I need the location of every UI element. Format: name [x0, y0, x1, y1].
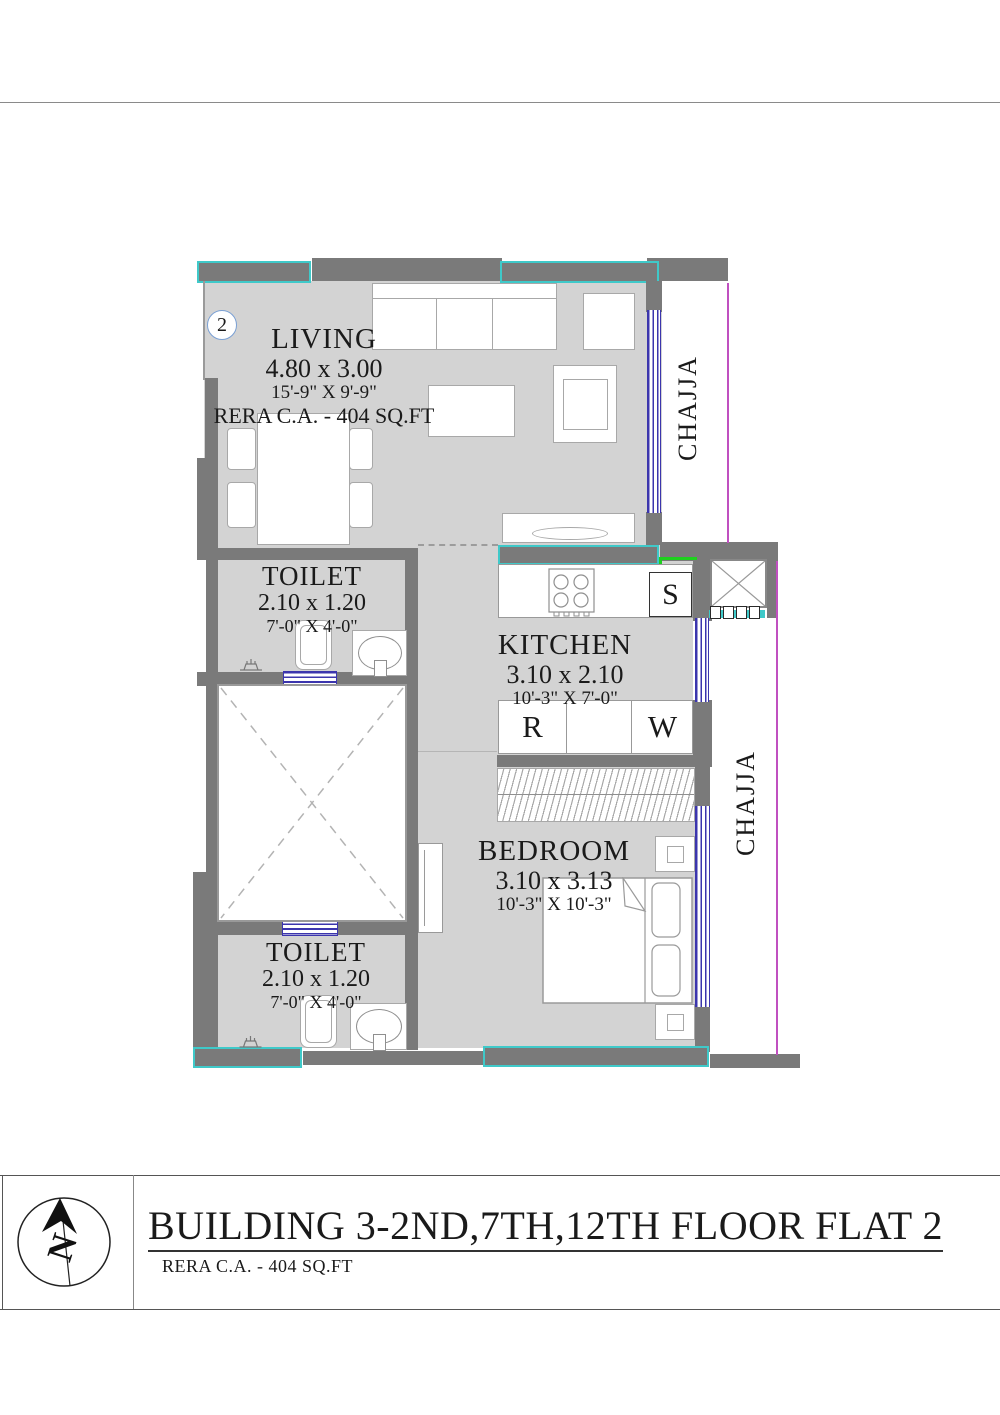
- lift-shaft-cross: [219, 686, 405, 920]
- floor-plan-page: S R W: [0, 0, 1000, 1415]
- wall-living-right-bottom: [646, 512, 662, 545]
- toilet-bottom-dim-m: 2.10 x 1.20: [222, 967, 410, 993]
- armchair: [553, 365, 617, 443]
- chajja2-boundary-line: [776, 561, 778, 1055]
- green-marker-h: [659, 557, 697, 560]
- toilet-top-labels: TOILET 2.10 x 1.20 7'-0" X 4'-0": [218, 562, 406, 637]
- wardrobe-mid-line: [498, 794, 694, 795]
- armchair-seat: [563, 379, 608, 430]
- bedroom-labels: BEDROOM 3.10 x 3.13 10'-3" X 10'-3": [455, 836, 653, 916]
- stove-icon: [547, 567, 596, 617]
- duct-vent-square: [710, 606, 721, 619]
- bedroom-door-leaf: [418, 843, 443, 933]
- nightstand-inner: [667, 846, 684, 863]
- wall-chajja2-bottom: [710, 1054, 800, 1068]
- drawing-subtitle: RERA C.A. - 404 SQ.FT: [162, 1257, 353, 1275]
- wall-top-cyan-2: [500, 261, 659, 283]
- tv-unit: [502, 513, 635, 543]
- nightstand: [655, 1004, 695, 1040]
- wall-top-mid: [312, 258, 502, 281]
- floor-drain-icon: [238, 656, 264, 672]
- wall-kitchen-top-cyan: [498, 545, 659, 565]
- nightstand: [655, 836, 695, 872]
- bedroom-dim-m: 3.10 x 3.13: [455, 867, 653, 895]
- chajja-top-label: CHAJJA: [673, 328, 701, 488]
- room-name-toilet-top: TOILET: [218, 562, 406, 591]
- lift-shaft: [217, 684, 407, 922]
- tv-icon: [532, 527, 608, 540]
- bedroom-window: [695, 806, 710, 1007]
- dining-chair: [227, 428, 256, 470]
- wall-left-b: [197, 458, 218, 560]
- living-rera: RERA C.A. - 404 SQ.FT: [198, 404, 450, 428]
- side-table: [583, 293, 635, 350]
- kitchen-labels: KITCHEN 3.10 x 2.10 10'-3" X 7'-0": [470, 630, 660, 710]
- floor-drain-icon: [236, 1033, 265, 1049]
- title-block-top-border: [0, 1175, 1000, 1176]
- title-block-left-border: [2, 1175, 3, 1309]
- wall-toilet-top-north: [202, 548, 408, 560]
- sink-label: S: [662, 578, 679, 612]
- drawing-title-wrap: BUILDING 3-2ND,7TH,12TH FLOOR FLAT 2: [148, 1206, 943, 1252]
- sofa-back-line: [373, 298, 556, 299]
- nightstand-inner: [667, 1014, 684, 1031]
- sink-box: S: [649, 572, 692, 617]
- bedroom-passage-line: [418, 751, 497, 752]
- toilet-top-dim-m: 2.10 x 1.20: [218, 591, 406, 617]
- toilet-bottom-labels: TOILET 2.10 x 1.20 7'-0" X 4'-0": [222, 938, 410, 1013]
- toilet-top-dim-ft: 7'-0" X 4'-0": [218, 617, 406, 636]
- page-frame-top-line: [0, 102, 1000, 103]
- chajja-bottom-label: CHAJJA: [731, 723, 759, 883]
- wall-bottom-mid: [303, 1051, 483, 1065]
- toilet-bottom-dim-ft: 7'-0" X 4'-0": [222, 993, 410, 1012]
- duct-cross: [712, 561, 765, 606]
- dining-chair: [349, 428, 373, 470]
- wall-bedroom-right-a: [695, 767, 710, 807]
- wall-living-right-top: [646, 281, 662, 312]
- room-name-toilet-bottom: TOILET: [222, 938, 410, 967]
- dining-chair: [349, 482, 373, 528]
- door-leaf-inner-line: [424, 850, 425, 926]
- dining-chair: [227, 482, 256, 528]
- wall-bedroom-south-cyan: [483, 1046, 709, 1067]
- kitchen-dim-m: 3.10 x 2.10: [470, 661, 660, 689]
- wall-top-cyan-1: [197, 261, 311, 283]
- washer-label: W: [631, 709, 694, 745]
- title-block-bottom-border: [0, 1309, 1000, 1310]
- wall-kitchen-bottom: [497, 755, 712, 767]
- wall-left-d: [193, 872, 218, 1065]
- basin-stem: [374, 660, 387, 677]
- kitchen-window: [695, 618, 709, 702]
- north-arrow-icon: N: [16, 1194, 116, 1290]
- duct-vent-square: [736, 606, 747, 619]
- living-labels: LIVING 4.80 x 3.00 15'-9" X 9'-9" RERA C…: [198, 324, 450, 428]
- title-block-divider: [133, 1175, 134, 1309]
- living-dim-ft: 15'-9" X 9'-9": [198, 383, 450, 404]
- washbasin-top: [352, 630, 407, 676]
- living-window: [647, 310, 661, 513]
- wall-toilet2-north-left: [218, 920, 282, 935]
- room-name-living: LIVING: [198, 324, 450, 355]
- drawing-title: BUILDING 3-2ND,7TH,12TH FLOOR FLAT 2: [148, 1206, 943, 1252]
- bedroom-dim-ft: 10'-3" X 10'-3": [455, 895, 653, 916]
- passage-dashed-line: [418, 544, 498, 546]
- wall-toilet2-south-cyan: [193, 1047, 302, 1068]
- duct-vent-square: [723, 606, 734, 619]
- dining-table: [257, 413, 350, 545]
- duct-vent-square: [749, 606, 760, 619]
- kitchen-dim-ft: 10'-3" X 7'-0": [470, 689, 660, 710]
- wall-toilet2-north-right: [338, 920, 418, 935]
- wall-top-right: [647, 258, 728, 281]
- kitchen-duct: [710, 559, 767, 608]
- room-name-bedroom: BEDROOM: [455, 836, 653, 867]
- chajja1-boundary-line: [727, 283, 729, 543]
- room-name-kitchen: KITCHEN: [470, 630, 660, 661]
- living-dim-m: 4.80 x 3.00: [198, 355, 450, 383]
- fridge-label: R: [499, 709, 566, 745]
- wardrobe: [497, 768, 695, 822]
- sofa-divider: [492, 298, 493, 349]
- basin-stem: [373, 1034, 386, 1051]
